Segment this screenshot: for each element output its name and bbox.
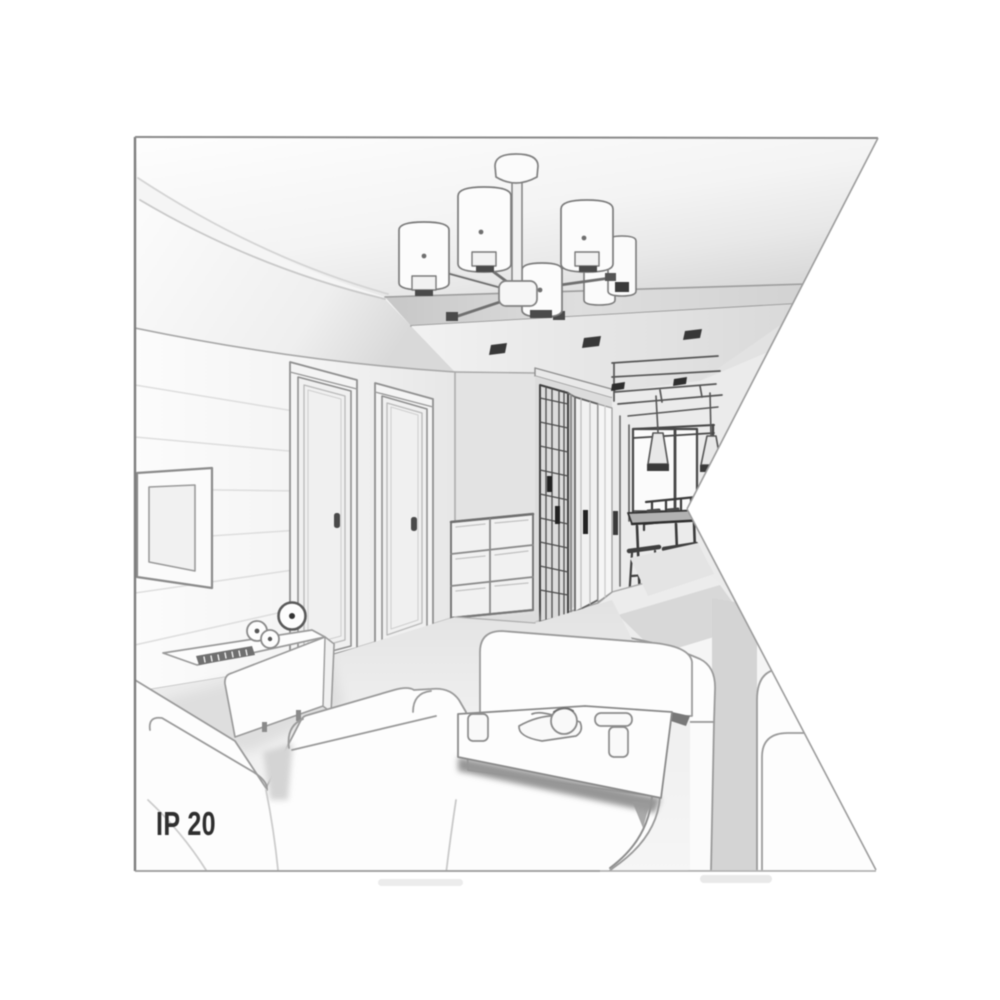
svg-text:IP 20: IP 20 [156, 806, 216, 843]
